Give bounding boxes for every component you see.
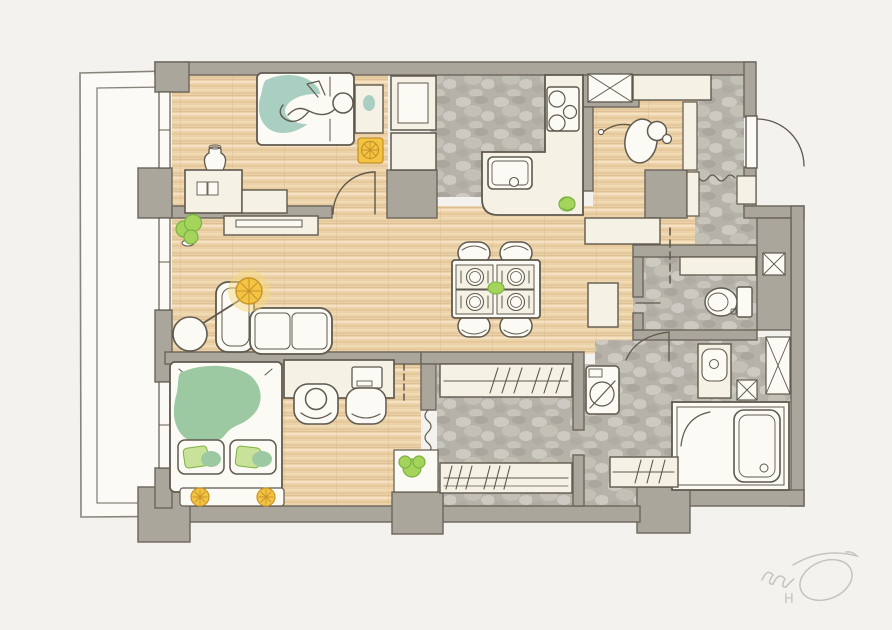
nook-plant-leaf-2 (399, 456, 411, 468)
wall-bath-bottom (688, 490, 804, 506)
living-corner-cabinet (588, 283, 618, 327)
wall-bedroom2-east (421, 364, 436, 410)
wall-kitchen-strip (583, 107, 593, 191)
rug-medallion-2-spokes (259, 490, 273, 504)
sink-faucet (510, 178, 519, 187)
person-on-bed-head (333, 93, 353, 113)
dresser-drawer-1 (197, 182, 207, 195)
wall-toilet-north (633, 245, 757, 257)
dresser-drawer-2 (208, 182, 218, 195)
wall-toilet-west-b (633, 313, 643, 330)
entry-door-leaf (746, 116, 757, 168)
balcony-floor (80, 72, 170, 518)
fridge-inner (398, 83, 428, 123)
plate-1 (467, 269, 484, 286)
rug-medallion-1-spokes (193, 490, 207, 504)
laptop (352, 367, 382, 388)
wall-hall-chunk (645, 170, 687, 218)
plate-2 (508, 269, 525, 286)
tv (236, 220, 302, 227)
floor-plan: H (0, 0, 892, 630)
plate-4 (508, 294, 525, 311)
hall-slim-cabinet (687, 172, 699, 216)
desk-chair-2 (346, 388, 386, 424)
sofa-seat (250, 308, 332, 354)
corridor-cabinet (585, 218, 660, 244)
bed2-cushion-blob-1 (201, 451, 221, 467)
vanity-basin (702, 349, 727, 381)
shoe-cabinet-top (633, 75, 711, 100)
pillar-top-left (155, 62, 189, 92)
living-plant-leaf-2 (185, 215, 202, 232)
window-2 (159, 218, 170, 310)
table-centerpiece (488, 282, 504, 294)
bed2-cushion-blob-2 (252, 451, 272, 467)
nook-plant-leaf-3 (413, 456, 425, 468)
pillar-bottom-mid (392, 492, 443, 534)
person-at-desk-head (306, 389, 327, 410)
plate-3 (467, 294, 484, 311)
wall-closet-pier-lower (573, 455, 584, 506)
nightstand-item (363, 95, 375, 111)
wall-bedroom1-closet-block (387, 170, 437, 218)
toilet-bowl (705, 288, 737, 316)
wall-toilet-west-a (633, 257, 643, 297)
person-in-hall-bun (663, 135, 672, 144)
wall-step-block (637, 487, 690, 533)
living-plant-leaf-3 (184, 230, 198, 244)
floor-lamp-base (173, 317, 207, 351)
signature-initial: H (784, 592, 794, 607)
wall-right (791, 206, 804, 506)
toilet-shelf (680, 257, 756, 275)
wall-right-upper (744, 62, 756, 117)
shoe-cabinet-side (683, 102, 697, 170)
wall-closet-north (421, 352, 573, 364)
toilet-tank (737, 287, 752, 317)
chest (242, 190, 287, 213)
bathtub (734, 410, 780, 482)
floor-plan-image: H (0, 0, 892, 630)
pillar-left-mid (138, 168, 172, 218)
entry-cabinet (737, 176, 756, 204)
wall-toilet-south (633, 330, 757, 340)
wall-top (155, 62, 755, 75)
person-in-hall-hand (598, 129, 603, 134)
kitchen-cabinet (391, 133, 436, 170)
wall-closet-pier-upper (573, 352, 584, 430)
